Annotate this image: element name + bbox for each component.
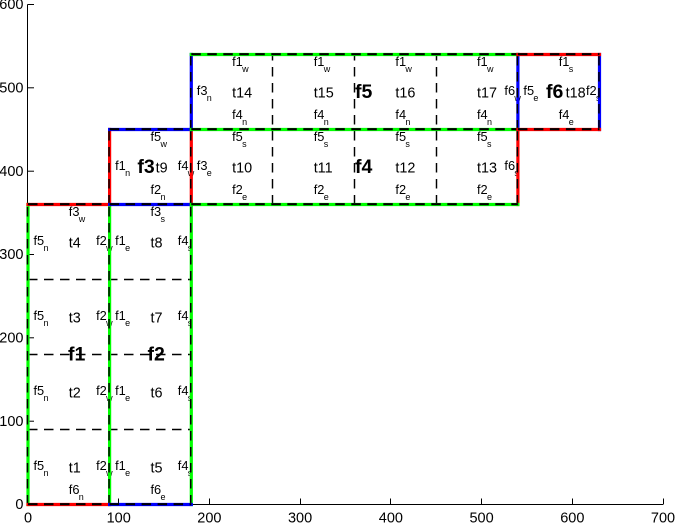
svg-text:e: e	[161, 492, 166, 502]
svg-text:700: 700	[651, 511, 675, 523]
svg-text:s: s	[324, 139, 329, 149]
svg-text:n: n	[79, 492, 84, 502]
svg-text:t8: t8	[151, 236, 163, 252]
svg-text:0: 0	[15, 497, 23, 513]
svg-text:w: w	[78, 214, 86, 224]
svg-text:n: n	[44, 243, 49, 253]
svg-text:300: 300	[0, 247, 24, 263]
svg-text:600: 600	[0, 0, 24, 13]
svg-text:300: 300	[288, 511, 312, 523]
svg-text:n: n	[44, 468, 49, 478]
svg-text:t9: t9	[156, 161, 168, 177]
svg-text:t15: t15	[314, 86, 334, 102]
svg-text:n: n	[324, 117, 329, 127]
svg-text:t11: t11	[314, 161, 333, 177]
svg-text:t7: t7	[151, 311, 163, 327]
svg-text:w: w	[241, 64, 249, 74]
svg-text:t18: t18	[566, 86, 586, 102]
svg-text:e: e	[405, 192, 410, 202]
svg-text:n: n	[487, 117, 492, 127]
svg-text:s: s	[161, 214, 166, 224]
svg-text:500: 500	[469, 511, 493, 523]
svg-text:e: e	[207, 168, 212, 178]
svg-text:w: w	[404, 64, 412, 74]
svg-text:n: n	[44, 393, 49, 403]
svg-text:s: s	[487, 139, 492, 149]
svg-text:100: 100	[107, 511, 131, 523]
svg-text:t2: t2	[69, 386, 81, 402]
svg-text:n: n	[405, 117, 410, 127]
svg-text:n: n	[242, 117, 247, 127]
svg-text:t10: t10	[232, 161, 252, 177]
svg-text:f5: f5	[355, 81, 372, 103]
svg-text:200: 200	[0, 331, 24, 347]
svg-text:e: e	[125, 393, 130, 403]
svg-text:w: w	[160, 139, 168, 149]
svg-text:w: w	[323, 64, 331, 74]
svg-text:t17: t17	[477, 86, 497, 102]
svg-text:e: e	[242, 192, 247, 202]
svg-text:e: e	[533, 93, 538, 103]
svg-text:100: 100	[0, 414, 24, 430]
svg-text:s: s	[569, 64, 574, 74]
svg-text:f4: f4	[355, 156, 372, 178]
svg-text:t14: t14	[232, 86, 252, 102]
svg-text:n: n	[161, 192, 166, 202]
svg-text:t4: t4	[69, 236, 81, 252]
svg-text:e: e	[324, 192, 329, 202]
svg-text:e: e	[487, 192, 492, 202]
svg-text:600: 600	[560, 511, 584, 523]
svg-text:t3: t3	[69, 311, 81, 327]
svg-text:t16: t16	[395, 86, 415, 102]
svg-text:e: e	[125, 318, 130, 328]
svg-text:e: e	[125, 243, 130, 253]
svg-text:f3: f3	[137, 156, 154, 178]
svg-text:n: n	[125, 168, 130, 178]
svg-text:t13: t13	[477, 161, 497, 177]
svg-text:e: e	[125, 468, 130, 478]
svg-text:t5: t5	[151, 461, 163, 477]
svg-text:400: 400	[379, 511, 403, 523]
svg-text:w: w	[486, 64, 494, 74]
svg-text:e: e	[569, 117, 574, 127]
svg-text:t6: t6	[151, 386, 163, 402]
svg-text:s: s	[405, 139, 410, 149]
svg-text:t12: t12	[395, 161, 415, 177]
svg-text:n: n	[207, 93, 212, 103]
svg-text:500: 500	[0, 81, 24, 97]
svg-text:s: s	[242, 139, 247, 149]
svg-text:f6: f6	[546, 81, 563, 103]
svg-text:0: 0	[24, 511, 32, 523]
svg-text:n: n	[44, 318, 49, 328]
svg-text:t1: t1	[69, 461, 81, 477]
svg-text:400: 400	[0, 164, 24, 180]
svg-text:200: 200	[197, 511, 221, 523]
